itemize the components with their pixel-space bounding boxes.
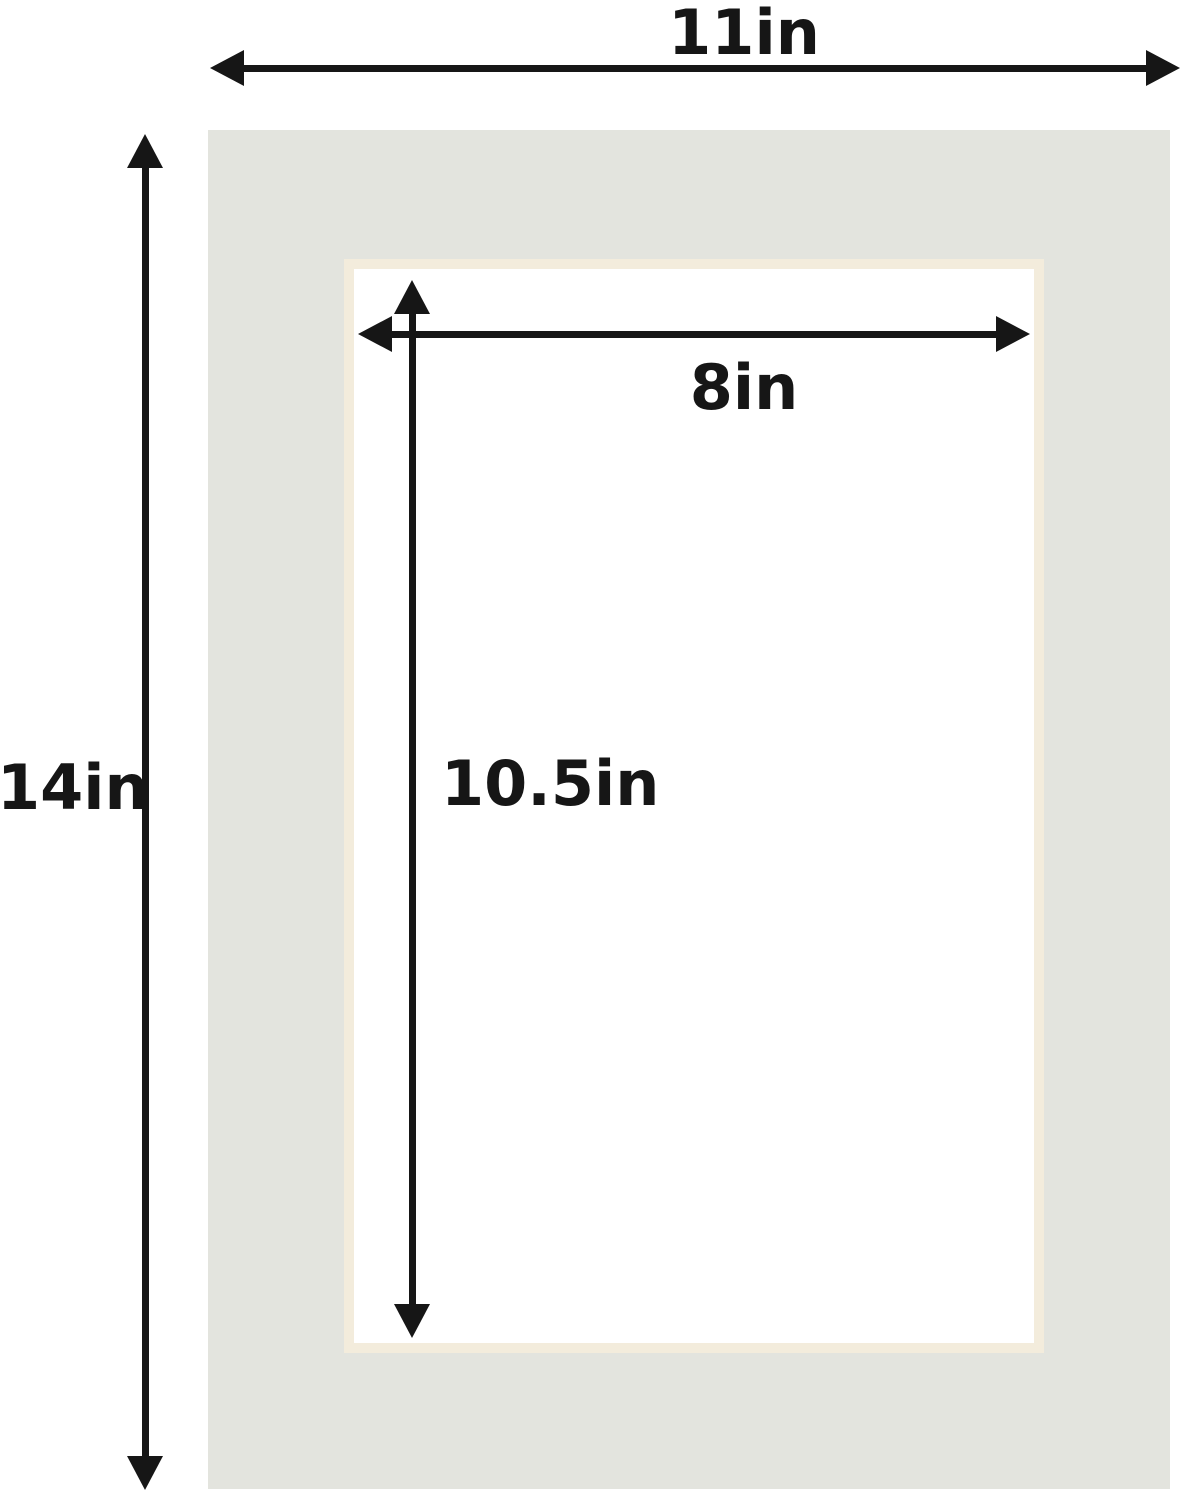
outer-height-arrow [125, 134, 165, 1490]
arrowhead-right-icon [1146, 50, 1180, 86]
opening-width-arrow [358, 314, 1030, 354]
arrowhead-left-icon [358, 316, 392, 352]
opening-height-label: 10.5in [441, 753, 659, 815]
arrow-line [236, 65, 1154, 72]
mat-dimension-diagram: 11in 14in 8in 10.5in [0, 0, 1190, 1500]
opening-width-label: 8in [690, 357, 799, 419]
outer-width-arrow [210, 48, 1180, 88]
arrowhead-up-icon [127, 134, 163, 168]
arrowhead-right-icon [996, 316, 1030, 352]
arrowhead-down-icon [127, 1456, 163, 1490]
opening-height-arrow [392, 280, 432, 1338]
arrowhead-down-icon [394, 1304, 430, 1338]
arrow-line [142, 160, 149, 1464]
arrow-line [409, 306, 416, 1312]
arrow-line [384, 331, 1004, 338]
arrowhead-up-icon [394, 280, 430, 314]
arrowhead-left-icon [210, 50, 244, 86]
